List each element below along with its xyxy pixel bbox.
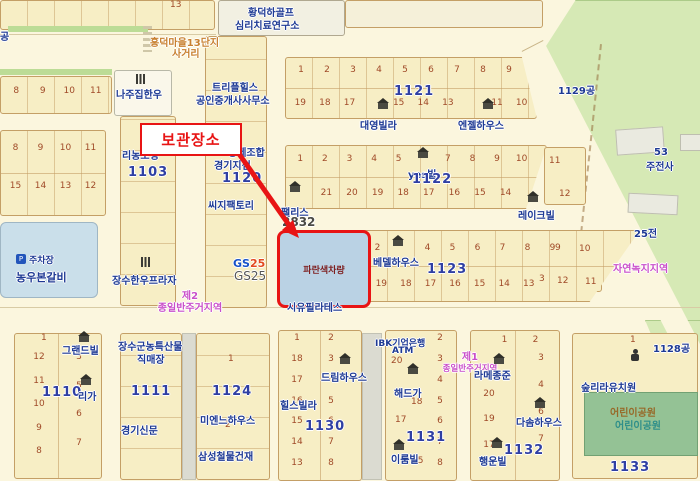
house-icon xyxy=(394,444,404,450)
parcel-number: 2 xyxy=(321,333,341,354)
poi-haengun: 행운빌 xyxy=(479,453,507,468)
parcel-number: 13 xyxy=(516,279,541,289)
left-parcel-row: 891011 xyxy=(0,76,112,114)
poi-triple-line2: 공인중개사사무소 xyxy=(196,92,270,107)
parcel-number: 16 xyxy=(442,188,468,198)
parcel-number: 3 xyxy=(337,154,362,164)
parcel-number: 8 xyxy=(430,458,450,479)
parcel-number: 10 xyxy=(56,86,83,96)
poi-nongwoo: 농우본갈비 xyxy=(16,269,67,285)
poi-iroom: 이룸빌 xyxy=(391,451,419,466)
block-number-1103: 1103 xyxy=(128,165,168,180)
house-icon xyxy=(290,186,300,192)
parcel-number: 4 xyxy=(366,65,392,75)
parcel-number: 18 xyxy=(313,98,338,108)
parcel-number: 7 xyxy=(321,437,341,458)
parcel-number: 3 xyxy=(539,274,545,284)
map-canvas[interactable]: 황덕하골프 심리치료연구소 13 공 흥덕마을13단지 사거리 891011 나… xyxy=(0,0,700,481)
poi-lameson: 라메종준 xyxy=(474,367,511,382)
parcel-number: 15 xyxy=(467,188,493,198)
parcel-number: 14 xyxy=(28,181,53,191)
parcel-number: 6 xyxy=(418,65,444,75)
parcel-number: 8 xyxy=(29,446,49,470)
parcel-number: 10 xyxy=(509,154,534,164)
parcel-number: 17 xyxy=(416,188,442,198)
parcel-number: 15 xyxy=(467,279,492,289)
poi-gs25: GS25 xyxy=(234,269,266,283)
parking-icon xyxy=(16,254,26,264)
poi-najip: 나주집한우 xyxy=(116,86,162,101)
parcel-number: 4 xyxy=(430,375,450,396)
top-right-strip xyxy=(345,0,543,28)
parcel-number: 13 xyxy=(436,98,461,108)
left-mid-block: 891011 15141312 xyxy=(0,130,106,216)
parcel-number: 1 xyxy=(287,333,307,354)
parcel-number: 19 xyxy=(288,98,313,108)
parcel-number: 3 xyxy=(340,65,366,75)
house-icon xyxy=(393,240,403,246)
parcel-divider xyxy=(58,334,59,478)
house-icon xyxy=(528,196,538,202)
parcel-number: 5 xyxy=(440,243,465,253)
road-label-gong: 공 xyxy=(0,28,9,43)
poi-bethel: 베델하우스 xyxy=(373,254,419,269)
parcel-number: 8 xyxy=(470,65,496,75)
parcel-number: 13 xyxy=(53,181,78,191)
poi-gongje-line2: 경기지점 xyxy=(214,157,251,172)
house-icon xyxy=(408,368,418,374)
driveway xyxy=(182,333,196,480)
green-zone-label: 자연녹지지역 xyxy=(613,264,668,276)
parcel-row: 891011 xyxy=(3,86,109,96)
parcel-number: 2 xyxy=(314,65,340,75)
house-icon xyxy=(494,358,504,364)
parcel-number: 20 xyxy=(391,356,402,366)
parcel-number: 9 xyxy=(496,65,522,75)
parcel-row: 1918171514131110 xyxy=(288,98,534,108)
parcel-number: 17 xyxy=(287,375,307,396)
parcel-number: 14 xyxy=(493,188,519,198)
parcel-number: 8 xyxy=(321,458,341,479)
parcel-number: 4 xyxy=(362,154,387,164)
parcel-number: 1 xyxy=(489,335,520,345)
block-number-1122: 1122 xyxy=(412,172,452,187)
poi-mienne: 미엔느하우스 xyxy=(200,412,255,427)
poi-dasom: 다솜하우스 xyxy=(516,414,562,429)
poi-hills: 힐스빌라 xyxy=(280,397,317,412)
block-number-1111: 1111 xyxy=(131,384,171,399)
restaurant-icon xyxy=(141,257,150,267)
poi-ibk-line2: ATM xyxy=(392,346,413,356)
parcel-number: 7 xyxy=(69,438,89,467)
parcel-number: 18 xyxy=(287,354,307,375)
poi-jujeonsa: 주전사 xyxy=(646,158,674,173)
parcel-number: 17 xyxy=(418,279,443,289)
green-strip xyxy=(8,26,148,32)
green-label-53: 53 xyxy=(654,147,668,158)
poi-pilates: 시유필라테스 xyxy=(287,299,342,314)
annotation-box: 보관장소 xyxy=(140,123,242,156)
parcel-row: 2120191817161514 xyxy=(288,188,544,198)
parcel-number: 14 xyxy=(411,98,436,108)
parcel-number: 1 xyxy=(630,335,636,345)
parcel-number: 1 xyxy=(41,333,47,343)
parcel-col: 12111098 xyxy=(29,352,49,470)
green-label-1129: 1129공 xyxy=(558,82,595,97)
block-number-1124: 1124 xyxy=(212,384,252,399)
poi-news: 경기신문 xyxy=(121,422,158,437)
parcel-number: 15 xyxy=(287,416,307,437)
poi-hanwoo-plaza: 장수한우프라자 xyxy=(112,272,176,287)
parcel-number: 7 xyxy=(436,154,461,164)
parcel-number: 3 xyxy=(531,353,551,380)
parcel-divider xyxy=(1,173,105,174)
poi-parking: 주차장 xyxy=(29,253,54,266)
parcel-number: 14 xyxy=(287,437,307,458)
parcel-row: 891011 xyxy=(3,143,103,153)
parcel-number: 5 xyxy=(430,396,450,417)
block-number-1123: 1123 xyxy=(427,262,467,277)
parcel-number: 17 xyxy=(337,98,362,108)
parcel-number: 12 xyxy=(559,189,570,199)
poi-grandvil: 그랜드빌 xyxy=(62,342,99,357)
parcel-number: 1 xyxy=(288,154,313,164)
forest-building xyxy=(680,134,700,151)
restaurant-icon xyxy=(136,74,145,84)
parcel-number: 14 xyxy=(492,279,517,289)
parcel-number: 9 xyxy=(29,423,49,447)
parcel-row: 15141312 xyxy=(3,181,103,191)
parcel-number: 18 xyxy=(390,188,416,198)
parcel-number: 17 xyxy=(395,415,406,425)
parcel-number: 5 xyxy=(392,65,418,75)
poi-samsung: 삼성철물건재 xyxy=(198,448,253,463)
poi-daeyoung: 대영빌라 xyxy=(360,117,397,132)
parcel-row: 123456789 xyxy=(288,65,522,75)
parcel-number: 20 xyxy=(339,188,365,198)
poi-golf-line2: 심리치료연구소 xyxy=(235,17,299,32)
parcel-number: 12 xyxy=(29,352,49,376)
parcel-number: 7 xyxy=(444,65,470,75)
parcel-row: 12 xyxy=(489,335,551,345)
poi-dream: 드림하우스 xyxy=(321,369,367,384)
zone2-line2: 종일반주거지역 xyxy=(150,303,230,315)
house-icon xyxy=(535,402,545,408)
zone1-line1: 제1 xyxy=(440,352,500,364)
parcel-number: 19 xyxy=(365,188,391,198)
parcel-number: 12 xyxy=(78,181,103,191)
forest-building xyxy=(628,193,679,216)
parcel-number: 9 xyxy=(485,154,510,164)
house-icon xyxy=(483,103,493,109)
green-strip xyxy=(0,69,112,75)
parcel-number: 2 xyxy=(520,335,551,345)
block-number-1131: 1131 xyxy=(406,430,446,445)
park-label: 어린이공원 xyxy=(615,417,661,432)
parcel-number: 1 xyxy=(288,65,314,75)
parcel-row: 19181716151413 xyxy=(369,279,541,289)
parcel-number: 8 xyxy=(3,86,30,96)
poi-palace-number: 2832 xyxy=(282,215,315,229)
driveway xyxy=(362,333,382,480)
highlighted-parcel: 파란색차량 xyxy=(277,230,371,308)
parcel-number: 11 xyxy=(549,156,560,166)
parcel-number: 16 xyxy=(443,279,468,289)
parcel-number: 2 xyxy=(313,154,338,164)
parcel-number: 18 xyxy=(394,279,419,289)
parcel-number: 11 xyxy=(585,277,596,287)
parcel-number: 10 xyxy=(579,244,590,254)
parcel-number: 7 xyxy=(490,243,515,253)
parcel-number: 8 xyxy=(515,243,540,253)
parcel-number: 19 xyxy=(369,279,394,289)
poi-mart-line2: 직매장 xyxy=(137,351,165,366)
parcel-number: 4 xyxy=(415,243,440,253)
block-number-1130: 1130 xyxy=(305,419,345,434)
parcel-number: 9 xyxy=(28,143,53,153)
annotation-label: 보관장소 xyxy=(161,129,220,150)
highlight-label: 파란색차량 xyxy=(303,263,344,276)
poi-cg-factory: 씨지팩토리 xyxy=(208,197,254,212)
poi-kindergarten: 숲리라유치원 xyxy=(581,379,636,394)
parcel-number: 8 xyxy=(460,154,485,164)
poi-lakevil: 레이크빌 xyxy=(518,207,555,222)
parcel-number: 2 xyxy=(430,333,450,354)
house-icon xyxy=(378,103,388,109)
parcel-number: 21 xyxy=(314,188,340,198)
zone2-label: 제2 종일반주거지역 xyxy=(150,291,230,315)
house-icon xyxy=(418,152,428,158)
parcel-number: 8 xyxy=(3,143,28,153)
parcel-number: 11 xyxy=(78,143,103,153)
poi-riga: 리가 xyxy=(78,388,96,403)
parcel-number: 10 xyxy=(509,98,534,108)
parcel-number: 6 xyxy=(465,243,490,253)
parcel-number: 10 xyxy=(29,399,49,423)
parcel-number: 11 xyxy=(83,86,110,96)
block-number-1132: 1132 xyxy=(504,443,544,458)
poi-angel: 엔젤하우스 xyxy=(458,117,504,132)
parcel-number: 13 xyxy=(287,458,307,479)
parcel-number: 15 xyxy=(386,98,411,108)
parcel-number: 20 xyxy=(479,389,499,415)
intersection-label-line2: 사거리 xyxy=(172,45,200,60)
poi-haedeu: 해드가 xyxy=(394,385,422,400)
parcel-number: 13 xyxy=(170,0,181,10)
block-number-1133: 1133 xyxy=(610,460,650,475)
parcel-number: 15 xyxy=(3,181,28,191)
block-number-1120: 1120 xyxy=(222,171,262,186)
parcel-number: 19 xyxy=(479,414,499,440)
parcel-number: 5 xyxy=(321,396,341,417)
parcel-number: 12 xyxy=(557,276,568,286)
parcel-number: 6 xyxy=(69,409,89,438)
parcel-row: 1234578910 xyxy=(288,154,534,164)
parcel-number: 5 xyxy=(386,154,411,164)
parcel-col: 2345678 xyxy=(321,333,341,479)
parcel-number: 10 xyxy=(53,143,78,153)
parcel-number: 1 xyxy=(228,354,234,364)
parcel-number: 9 xyxy=(30,86,57,96)
green-label-25: 25전 xyxy=(634,225,657,240)
parcel-col: 3567 xyxy=(69,352,89,466)
house-icon xyxy=(492,442,502,448)
green-label-1128: 1128공 xyxy=(653,340,690,355)
house-icon xyxy=(81,379,91,385)
person-icon xyxy=(630,349,640,361)
house-icon xyxy=(340,358,350,364)
zone2-line1: 제2 xyxy=(150,291,230,303)
parcel-number: 9 xyxy=(555,243,561,253)
parcel-number: 9 xyxy=(540,243,565,253)
block-number-1110: 1110 xyxy=(42,385,82,400)
block-number-1121: 1121 xyxy=(394,84,434,99)
